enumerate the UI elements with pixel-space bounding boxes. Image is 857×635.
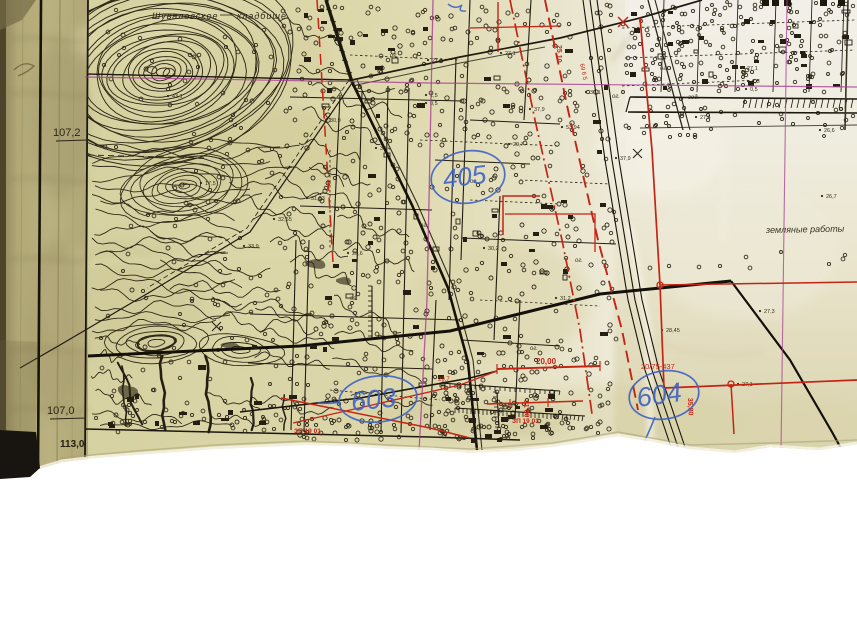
svg-text:20,00: 20,00 xyxy=(536,357,557,366)
svg-text:43,1: 43,1 xyxy=(172,94,183,100)
svg-text:29,7: 29,7 xyxy=(438,377,450,383)
svg-text:ЗП 19 01: ЗП 19 01 xyxy=(294,428,321,435)
svg-text:604: 604 xyxy=(635,377,684,413)
svg-text:ог.: ог. xyxy=(390,53,398,59)
svg-text:17,5: 17,5 xyxy=(205,181,216,187)
svg-text:кладбище: кладбище xyxy=(237,11,287,21)
svg-text:31,2: 31,2 xyxy=(560,296,571,302)
svg-text:земляные работы: земляные работы xyxy=(765,224,845,235)
svg-text:28,45: 28,45 xyxy=(666,328,680,334)
svg-text:27,1: 27,1 xyxy=(747,66,758,72)
svg-text:29,6: 29,6 xyxy=(352,251,363,257)
svg-text:27,4: 27,4 xyxy=(700,115,711,121)
svg-text:1,5: 1,5 xyxy=(752,79,760,85)
svg-text:37,9: 37,9 xyxy=(620,156,631,162)
svg-text:25 10: 25 10 xyxy=(555,45,562,63)
svg-text:ЗП 19 03: ЗП 19 03 xyxy=(512,418,539,425)
svg-text:31 80: 31 80 xyxy=(522,400,530,418)
svg-text:ог.: ог. xyxy=(612,94,620,100)
svg-text:30,2: 30,2 xyxy=(488,246,499,252)
svg-text:113,0: 113,0 xyxy=(60,439,85,450)
svg-text:20/75-437: 20/75-437 xyxy=(641,362,675,371)
svg-text:30,9: 30,9 xyxy=(330,118,341,124)
svg-text:ог.: ог. xyxy=(660,66,668,72)
svg-text:27,3: 27,3 xyxy=(764,309,775,315)
svg-text:0,5: 0,5 xyxy=(750,87,758,93)
svg-text:Шуваловское: Шуваловское xyxy=(152,11,219,21)
svg-text:31,83: 31,83 xyxy=(311,196,325,202)
svg-text:26,7: 26,7 xyxy=(826,194,837,200)
svg-text:33,9: 33,9 xyxy=(248,244,259,250)
svg-text:107,2: 107,2 xyxy=(53,127,81,139)
svg-text:30,1: 30,1 xyxy=(590,90,601,96)
svg-text:ог.: ог. xyxy=(350,296,358,302)
svg-text:год.: год. xyxy=(688,95,699,101)
svg-text:29,7: 29,7 xyxy=(513,142,524,148)
svg-text:ог.: ог. xyxy=(420,223,428,229)
svg-text:26,6: 26,6 xyxy=(824,128,835,134)
svg-text:ог.: ог. xyxy=(530,346,538,352)
svg-text:37,9: 37,9 xyxy=(534,107,545,113)
svg-text:27,1: 27,1 xyxy=(432,58,443,64)
svg-text:405: 405 xyxy=(441,159,488,194)
svg-text:603: 603 xyxy=(349,382,397,417)
svg-text:107,0: 107,0 xyxy=(47,405,75,417)
svg-text:32,55: 32,55 xyxy=(278,217,292,223)
svg-text:ог.: ог. xyxy=(575,258,583,264)
svg-text:30,4: 30,4 xyxy=(380,146,391,152)
svg-text:27,1: 27,1 xyxy=(505,51,516,57)
